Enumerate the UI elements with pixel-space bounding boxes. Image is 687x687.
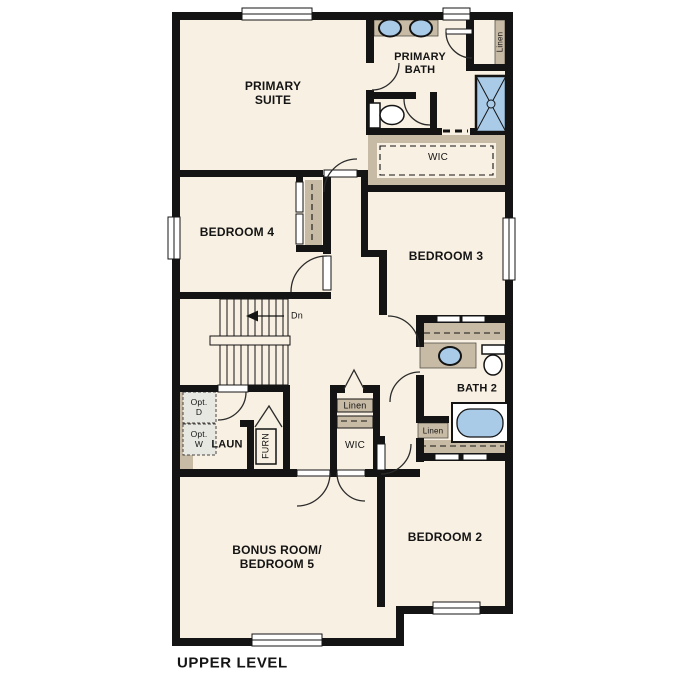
- label-linen-top: Linen: [495, 32, 504, 53]
- floorplan-drawing: [0, 0, 687, 687]
- stair-landing-rail: [210, 336, 290, 345]
- closet3-bypass-door: [462, 316, 485, 322]
- label-opt-dryer: Opt. D: [191, 397, 208, 417]
- window-primary-bath: [443, 8, 470, 20]
- plan-title: UPPER LEVEL: [177, 655, 288, 672]
- bath2-sink: [439, 347, 461, 365]
- closet4-bypass-door: [296, 214, 303, 244]
- stairs: [210, 299, 290, 385]
- room-label-laundry: LAUN: [211, 439, 242, 452]
- label-linen-mid: Linen: [343, 401, 366, 412]
- closet4-bypass-door: [296, 182, 303, 212]
- bathtub: [452, 403, 508, 442]
- room-label-bonus-room: BONUS ROOM/ BEDROOM 5: [232, 543, 322, 571]
- room-label-bedroom4: BEDROOM 4: [200, 225, 274, 239]
- shower: [476, 76, 506, 132]
- label-opt-washer: Opt. W: [191, 429, 208, 449]
- closet2-bypass-door: [463, 454, 487, 460]
- closet2-bypass-door: [435, 454, 459, 460]
- label-stairs-down: Dn: [291, 311, 303, 322]
- floorplan-page: PRIMARY SUITE PRIMARY BATH WIC Linen BED…: [0, 0, 687, 687]
- bedroom4-closet-shelf: [305, 180, 322, 246]
- label-linen-bath2: Linen: [423, 426, 444, 435]
- window-bedroom2: [433, 602, 480, 614]
- window-primary-suite: [242, 8, 312, 20]
- window-bonus-room: [252, 634, 322, 646]
- room-label-primary-bath: PRIMARY BATH: [394, 51, 446, 77]
- label-wic-mid: WIC: [345, 440, 365, 452]
- room-label-primary-suite: PRIMARY SUITE: [245, 79, 301, 107]
- window-bedroom4: [168, 217, 180, 259]
- room-label-bedroom3: BEDROOM 3: [409, 249, 483, 263]
- room-label-bedroom2: BEDROOM 2: [408, 530, 482, 544]
- label-furnace: FURN: [261, 433, 272, 459]
- room-label-bath2: BATH 2: [457, 383, 497, 396]
- label-primary-wic: WIC: [428, 152, 448, 164]
- bedroom3-closet-shelf: [420, 323, 505, 340]
- closet3-bypass-door: [437, 316, 460, 322]
- window-bedroom3: [503, 218, 515, 280]
